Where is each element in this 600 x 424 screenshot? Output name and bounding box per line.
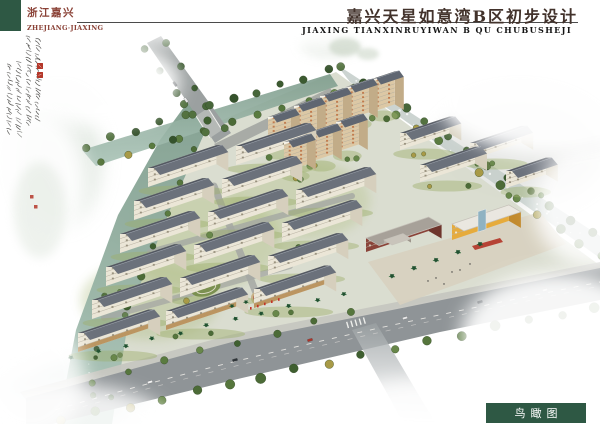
region-title: 浙江嘉兴 xyxy=(27,5,75,20)
project-title: 嘉兴天星如意湾B区初步设计 xyxy=(346,3,578,27)
calligraphy-inscription xyxy=(2,34,46,234)
logo-block xyxy=(0,0,21,31)
view-label-box: 鸟瞰图 xyxy=(486,403,586,423)
project-title-en: JIAXING TIANXINRUYIWAN B QU CHUBUSHEJI xyxy=(302,25,572,35)
presentation-board: 浙江嘉兴 ZHEJIANG·JIAXING 嘉兴天星如意湾B区初步设计 JIAX… xyxy=(0,0,600,424)
region-subtitle: ZHEJIANG·JIAXING xyxy=(27,24,103,32)
view-label: 鸟瞰图 xyxy=(510,405,563,421)
aerial-rendering xyxy=(0,0,600,424)
